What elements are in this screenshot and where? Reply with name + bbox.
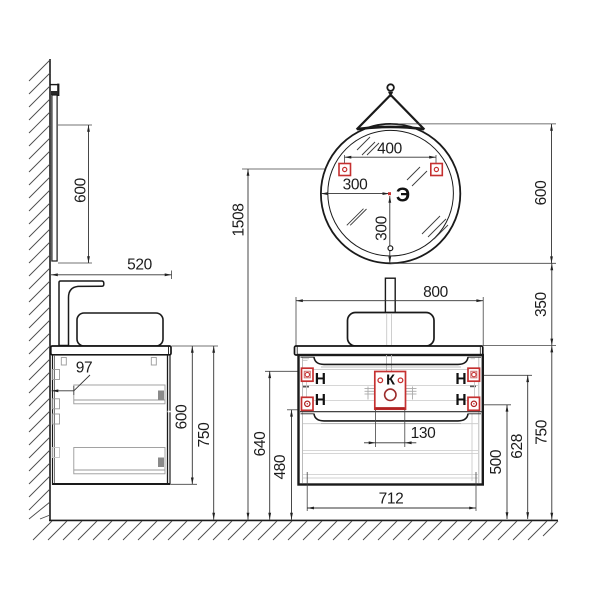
- svg-text:Н: Н: [315, 371, 326, 388]
- svg-text:600: 600: [533, 180, 550, 205]
- svg-text:130: 130: [411, 425, 436, 442]
- svg-text:97: 97: [76, 360, 92, 377]
- svg-text:750: 750: [196, 422, 213, 447]
- svg-text:800: 800: [423, 284, 448, 301]
- svg-text:712: 712: [379, 491, 404, 508]
- svg-text:Н: Н: [455, 371, 466, 388]
- svg-text:350: 350: [533, 291, 550, 316]
- svg-text:1508: 1508: [231, 204, 248, 237]
- svg-text:300: 300: [343, 176, 368, 193]
- svg-text:400: 400: [377, 140, 402, 157]
- svg-text:520: 520: [127, 257, 152, 274]
- svg-text:Н: Н: [455, 392, 466, 409]
- svg-text:750: 750: [534, 419, 551, 444]
- svg-text:600: 600: [173, 404, 190, 429]
- svg-text:500: 500: [488, 449, 505, 474]
- svg-text:480: 480: [272, 454, 289, 479]
- svg-text:Э: Э: [396, 184, 410, 206]
- svg-text:К: К: [386, 372, 395, 388]
- svg-text:628: 628: [509, 434, 526, 459]
- svg-text:Н: Н: [315, 392, 326, 409]
- svg-text:640: 640: [252, 431, 269, 456]
- svg-text:600: 600: [73, 177, 90, 202]
- svg-text:300: 300: [373, 215, 390, 240]
